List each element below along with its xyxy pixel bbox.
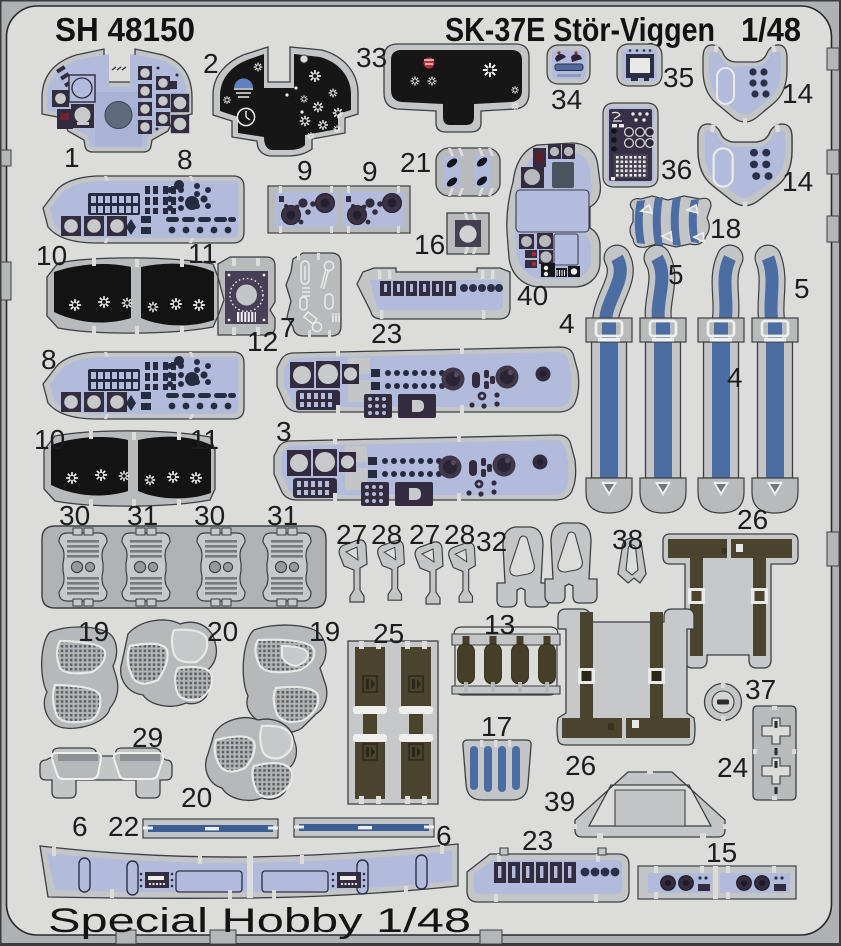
svg-text:24: 24 bbox=[717, 752, 748, 783]
svg-text:39: 39 bbox=[544, 786, 575, 817]
svg-text:28: 28 bbox=[371, 519, 402, 550]
svg-text:22: 22 bbox=[108, 811, 139, 842]
svg-text:30: 30 bbox=[59, 500, 90, 531]
svg-text:20: 20 bbox=[181, 782, 212, 813]
svg-text:2: 2 bbox=[203, 48, 219, 79]
svg-text:20: 20 bbox=[207, 616, 238, 647]
svg-text:4: 4 bbox=[727, 362, 743, 393]
svg-text:23: 23 bbox=[371, 318, 402, 349]
svg-text:SK-37E Stör-Viggen: SK-37E Stör-Viggen bbox=[445, 11, 715, 48]
svg-text:27: 27 bbox=[409, 519, 440, 550]
svg-text:12: 12 bbox=[247, 326, 278, 357]
svg-text:25: 25 bbox=[373, 618, 404, 649]
svg-text:23: 23 bbox=[522, 825, 553, 856]
svg-text:1: 1 bbox=[64, 142, 80, 173]
svg-text:19: 19 bbox=[78, 616, 109, 647]
svg-text:11: 11 bbox=[188, 238, 217, 269]
svg-text:15: 15 bbox=[706, 837, 737, 868]
svg-text:26: 26 bbox=[565, 750, 596, 781]
svg-text:8: 8 bbox=[41, 344, 57, 375]
svg-text:38: 38 bbox=[612, 524, 643, 555]
svg-text:31: 31 bbox=[267, 500, 298, 531]
svg-text:8: 8 bbox=[177, 144, 193, 175]
svg-text:27: 27 bbox=[336, 519, 367, 550]
svg-text:16: 16 bbox=[414, 229, 445, 260]
svg-text:5: 5 bbox=[794, 273, 810, 304]
svg-text:SH 48150: SH 48150 bbox=[55, 11, 195, 48]
svg-text:3: 3 bbox=[276, 416, 292, 447]
svg-text:34: 34 bbox=[551, 84, 582, 115]
svg-text:7: 7 bbox=[280, 312, 296, 343]
svg-text:5: 5 bbox=[668, 259, 684, 290]
svg-text:19: 19 bbox=[309, 616, 340, 647]
svg-text:9: 9 bbox=[362, 156, 378, 187]
svg-text:9: 9 bbox=[297, 155, 313, 186]
svg-text:28: 28 bbox=[444, 519, 475, 550]
svg-text:32: 32 bbox=[476, 526, 507, 557]
svg-text:18: 18 bbox=[710, 213, 741, 244]
svg-text:29: 29 bbox=[132, 722, 163, 753]
svg-text:6: 6 bbox=[72, 811, 88, 842]
svg-text:33: 33 bbox=[356, 42, 387, 73]
svg-text:31: 31 bbox=[127, 500, 158, 531]
svg-text:10: 10 bbox=[34, 424, 65, 455]
svg-text:4: 4 bbox=[559, 308, 575, 339]
svg-text:35: 35 bbox=[663, 62, 694, 93]
svg-text:21: 21 bbox=[400, 147, 431, 178]
svg-text:6: 6 bbox=[436, 820, 452, 851]
svg-text:1/48: 1/48 bbox=[741, 11, 801, 48]
svg-text:14: 14 bbox=[782, 166, 813, 197]
svg-text:11: 11 bbox=[190, 424, 219, 455]
svg-text:17: 17 bbox=[481, 711, 512, 742]
svg-text:26: 26 bbox=[737, 504, 768, 535]
svg-text:40: 40 bbox=[517, 280, 548, 311]
svg-text:10: 10 bbox=[36, 240, 67, 271]
svg-text:14: 14 bbox=[782, 78, 813, 109]
svg-text:37: 37 bbox=[745, 674, 776, 705]
svg-text:30: 30 bbox=[194, 500, 225, 531]
svg-text:Special Hobby 1/48: Special Hobby 1/48 bbox=[48, 902, 471, 940]
svg-text:36: 36 bbox=[661, 154, 692, 185]
svg-text:13: 13 bbox=[484, 609, 515, 640]
